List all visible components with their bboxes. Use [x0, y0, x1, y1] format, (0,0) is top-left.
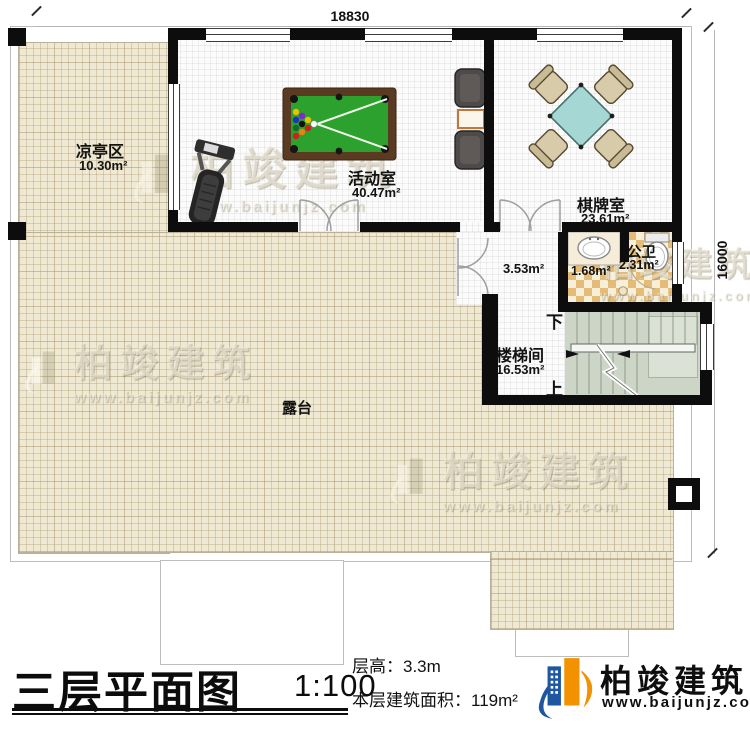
wall: [360, 222, 460, 232]
dimension-line-top: [36, 26, 690, 27]
room-area-hall: 3.53m²: [503, 261, 544, 276]
floor-area-note: 本层建筑面积：119m²: [352, 686, 518, 711]
dimension-label-top: 18830: [300, 8, 400, 24]
dimension-tick: [31, 6, 42, 17]
window: [700, 324, 714, 370]
lower-floor-outline-bottom-right: [515, 628, 629, 657]
stair-down-label: 下: [546, 308, 563, 333]
brand-logo-icon: [532, 654, 594, 722]
dimension-line-right: [714, 30, 715, 554]
room-area-chess: 23.61m²: [581, 211, 629, 226]
title-underline: [12, 713, 348, 715]
wall: [168, 28, 178, 84]
room-area-basin: 1.68m²: [571, 264, 611, 278]
column: [8, 222, 26, 240]
wall: [168, 222, 298, 232]
dimension-label-right: 16000: [714, 230, 730, 290]
lower-floor-outline-bottom-left: [160, 560, 344, 665]
room-area-stairwell: 16.53m²: [496, 362, 544, 377]
wall: [558, 232, 568, 310]
wall: [700, 370, 712, 402]
terrace-extension: [490, 551, 674, 630]
wall: [488, 395, 712, 405]
wall: [700, 302, 712, 324]
wall: [672, 28, 682, 232]
wall: [290, 28, 365, 40]
room-label-terrace: 露台: [282, 397, 312, 418]
wall: [484, 28, 494, 232]
doorway-patch: [460, 222, 484, 232]
wall: [452, 28, 537, 40]
window: [537, 28, 623, 42]
outline-cross-line: [490, 559, 672, 560]
dimension-tick: [707, 548, 718, 559]
dimension-tick: [681, 8, 692, 19]
floor-plan: 柏竣建筑 www.baijunjz.com 柏竣建筑 www.baijunjz.…: [0, 0, 750, 730]
wall: [558, 302, 712, 312]
window: [206, 28, 290, 42]
window: [168, 84, 180, 210]
stair-opening: [648, 316, 698, 378]
brand-url: www.baijunjz.com: [602, 694, 750, 711]
room-area-toilet: 2.31m²: [619, 258, 659, 272]
wall: [494, 222, 500, 232]
column: [8, 28, 26, 46]
window: [365, 28, 452, 42]
window: [672, 242, 684, 284]
room-area-pavilion: 10.30m²: [79, 158, 127, 173]
floor-height-note: 层高：3.3m: [352, 652, 441, 677]
stair-up-label: 上: [546, 375, 563, 400]
room-area-activity: 40.47m²: [352, 185, 400, 200]
wall: [672, 232, 682, 242]
dimension-tick: [703, 22, 714, 33]
title-underline: [12, 708, 348, 711]
column-inner: [676, 486, 692, 502]
